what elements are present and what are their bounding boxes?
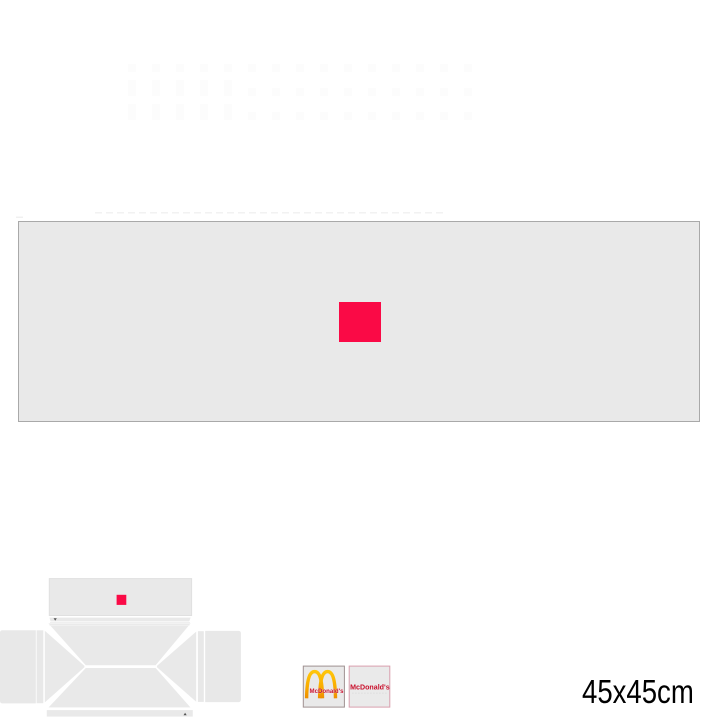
svg-text:McDonald's: McDonald's bbox=[350, 684, 390, 692]
svg-text:McDonald's: McDonald's bbox=[310, 688, 345, 695]
